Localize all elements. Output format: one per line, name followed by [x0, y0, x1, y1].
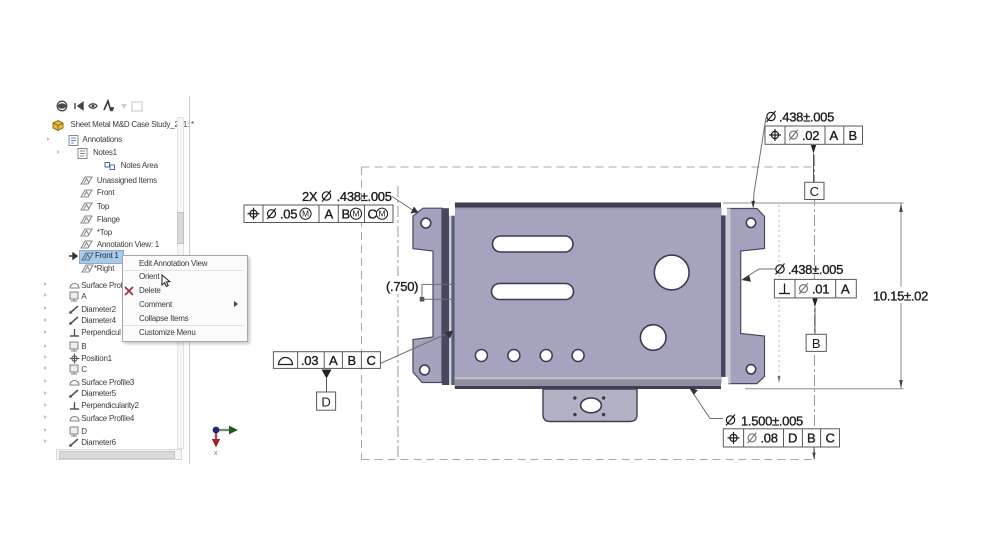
svg-text:.438±.005: .438±.005	[337, 189, 392, 204]
svg-text:C: C	[368, 207, 377, 222]
svg-text:M: M	[352, 209, 359, 219]
svg-text:D: D	[321, 395, 330, 410]
svg-text:.01: .01	[812, 281, 829, 296]
svg-text:C: C	[810, 184, 819, 199]
svg-text:.438±.005: .438±.005	[779, 110, 834, 125]
svg-text:A: A	[841, 281, 850, 296]
svg-text:M: M	[302, 209, 309, 219]
svg-text:2X: 2X	[302, 189, 318, 204]
svg-text:(.750): (.750)	[386, 279, 418, 294]
svg-text:.03: .03	[301, 353, 318, 368]
svg-text:.438±.005: .438±.005	[788, 262, 843, 277]
svg-text:1.500±.005: 1.500±.005	[741, 414, 803, 429]
svg-text:A: A	[329, 353, 338, 368]
svg-text:.08: .08	[761, 431, 778, 446]
svg-text:10.15±.02: 10.15±.02	[873, 289, 928, 304]
svg-text:C: C	[826, 431, 835, 446]
svg-text:B: B	[849, 128, 857, 143]
svg-text:B: B	[812, 336, 821, 351]
svg-text:M: M	[378, 209, 385, 219]
svg-text:.05: .05	[280, 207, 297, 222]
svg-text:D: D	[788, 431, 797, 446]
svg-text:A: A	[325, 207, 334, 222]
svg-text:x: x	[214, 450, 218, 457]
svg-text:B: B	[807, 431, 815, 446]
svg-text:B: B	[342, 207, 350, 222]
svg-text:B: B	[348, 353, 356, 368]
svg-text:A: A	[830, 128, 839, 143]
svg-text:C: C	[367, 353, 376, 368]
svg-text:.02: .02	[802, 128, 819, 143]
